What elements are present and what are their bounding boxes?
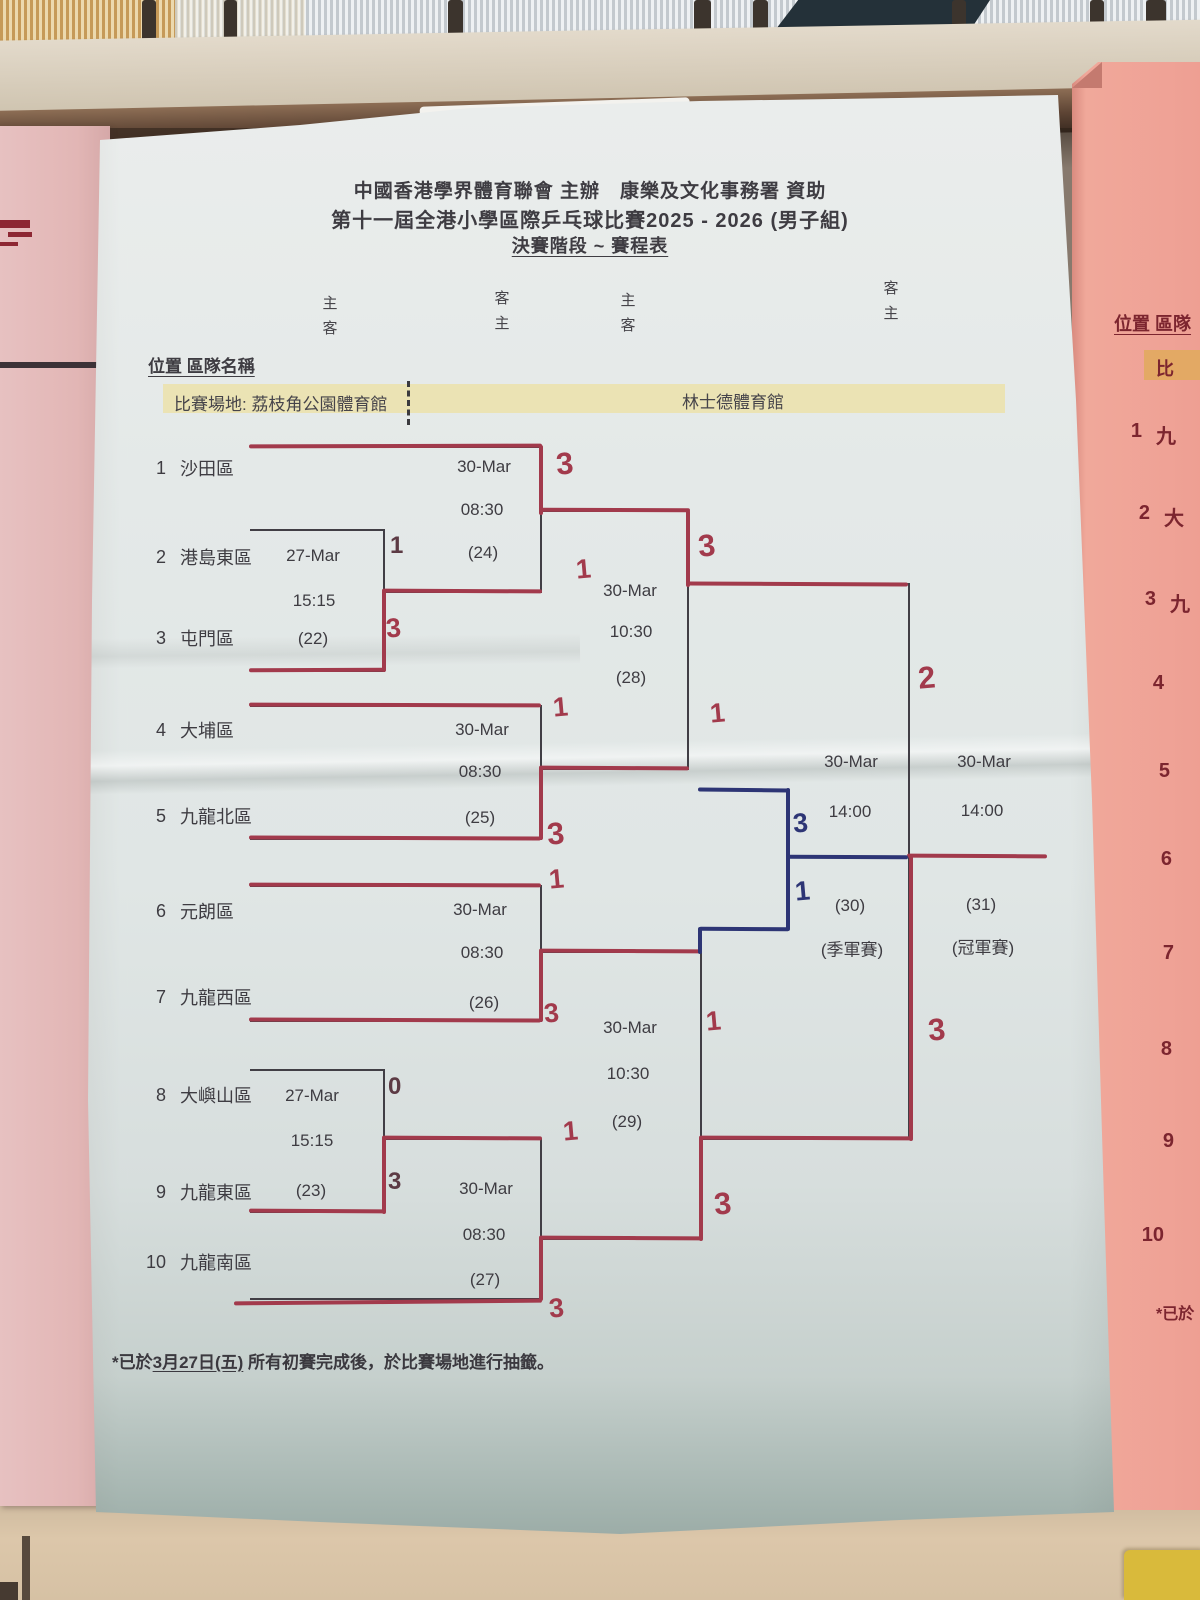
match27-score-bottom: 3 bbox=[548, 1294, 565, 1322]
match30-score-top: 3 bbox=[792, 809, 809, 837]
match30-score-bottom: 1 bbox=[794, 877, 811, 905]
pen-line-red bbox=[249, 883, 541, 888]
match23-code: (23) bbox=[296, 1181, 326, 1201]
match31-date: 30-Mar bbox=[957, 752, 1011, 772]
match26-score-top: 1 bbox=[548, 865, 565, 893]
pen-line-red bbox=[699, 1137, 703, 1241]
side-row-no: 3 bbox=[1130, 588, 1156, 617]
match28-score-bottom: 1 bbox=[709, 699, 726, 727]
home-away-header-1: 主客 bbox=[315, 291, 345, 341]
match29-time: 10:30 bbox=[607, 1064, 650, 1084]
venue-divider-dashed bbox=[407, 381, 410, 425]
team-row: 6元朗區 bbox=[126, 898, 234, 924]
pen-line-red bbox=[539, 766, 689, 771]
match29-score-bottom: 3 bbox=[713, 1187, 733, 1219]
home-away-header-3: 主客 bbox=[613, 288, 643, 338]
side-row-no: 4 bbox=[1138, 672, 1164, 695]
team-row: 5九龍北區 bbox=[126, 803, 252, 829]
pen-line-red bbox=[539, 1237, 543, 1301]
team-row: 8大嶼山區 bbox=[126, 1082, 252, 1108]
team-row: 4大埔區 bbox=[126, 717, 234, 743]
left-sheet-rule bbox=[0, 362, 104, 368]
match31-score-bottom: 3 bbox=[927, 1013, 947, 1045]
match31-label: (冠軍賽) bbox=[952, 934, 1014, 959]
bulletin-board-photo: 位置 區隊 比 1九 2大 3九 4 5 6 7 8 9 10 *已於 中國香港… bbox=[0, 0, 1200, 1600]
pen-line-red bbox=[699, 1136, 912, 1141]
team-row: 10九龍南區 bbox=[126, 1249, 252, 1275]
match28-code: (28) bbox=[616, 668, 646, 688]
match22-time: 15:15 bbox=[293, 591, 336, 611]
match22-score-bottom: 3 bbox=[385, 614, 402, 642]
match23-date: 27-Mar bbox=[285, 1086, 339, 1106]
pen-line-red bbox=[539, 1236, 702, 1241]
match25-time: 08:30 bbox=[459, 762, 502, 782]
pen-line-red bbox=[249, 444, 542, 449]
position-team-header: 位置 區隊名稱 bbox=[148, 352, 255, 377]
pen-line-blue bbox=[698, 788, 790, 793]
pen-line-red bbox=[249, 1209, 385, 1214]
pen-line-red bbox=[909, 855, 913, 1141]
pen-line-red bbox=[382, 1136, 542, 1141]
pen-line-red bbox=[539, 508, 690, 513]
match28-date: 30-Mar bbox=[603, 581, 657, 601]
home-away-header-2: 客主 bbox=[487, 286, 517, 336]
match22-date: 27-Mar bbox=[286, 546, 340, 566]
match22-code: (22) bbox=[298, 629, 328, 649]
bracket-line bbox=[250, 529, 383, 531]
match23-time: 15:15 bbox=[291, 1131, 334, 1151]
side-row-name: 大 bbox=[1164, 502, 1184, 531]
draw-footnote: *已於3月27日(五) 所有初賽完成後，於比賽場地進行抽籤。 bbox=[112, 1348, 554, 1373]
side-row-no: 10 bbox=[1138, 1224, 1164, 1247]
match25-score-bottom: 3 bbox=[546, 817, 566, 849]
match22-score-top: 1 bbox=[390, 534, 403, 558]
side-venue-partial: 比 bbox=[1156, 355, 1174, 381]
match27-time: 08:30 bbox=[463, 1225, 506, 1245]
match29-score-top: 1 bbox=[705, 1007, 722, 1035]
side-row-name: 九 bbox=[1170, 588, 1190, 617]
team-row: 1沙田區 bbox=[126, 455, 234, 481]
match24-score-bottom: 1 bbox=[575, 555, 592, 583]
match27-date: 30-Mar bbox=[459, 1179, 513, 1199]
match30-label: (季軍賽) bbox=[821, 936, 883, 961]
pen-line-red bbox=[686, 582, 908, 587]
match25-score-top: 1 bbox=[552, 693, 569, 721]
pen-line-red bbox=[249, 668, 385, 672]
match30-code: (30) bbox=[835, 896, 865, 916]
team-row: 9九龍東區 bbox=[126, 1179, 252, 1205]
side-footnote-partial: *已於 bbox=[1156, 1300, 1194, 1324]
pen-line-red bbox=[539, 445, 543, 515]
event-title: 第十一屆全港小學區際乒乓球比賽2025 - 2026 (男子組) bbox=[90, 204, 1090, 233]
pen-line-red bbox=[382, 1137, 386, 1214]
team-row: 3屯門區 bbox=[126, 625, 234, 651]
venue-first: 比賽場地: 荔枝角公園體育館 bbox=[174, 390, 387, 415]
match31-time: 14:00 bbox=[961, 801, 1004, 821]
match25-date: 30-Mar bbox=[455, 720, 509, 740]
match23-score-top: 0 bbox=[388, 1075, 401, 1099]
side-position-header: 位置 區隊 bbox=[1114, 310, 1191, 336]
pen-line-red bbox=[686, 510, 690, 587]
team-row: 2港島東區 bbox=[126, 544, 252, 570]
match26-code: (26) bbox=[469, 993, 499, 1013]
match27-score-top: 1 bbox=[562, 1117, 579, 1145]
side-row-name: 九 bbox=[1156, 420, 1176, 449]
pen-line-blue bbox=[698, 927, 702, 954]
organizer-title: 中國香港學界體育聯會 主辦 康樂及文化事務署 資助 bbox=[90, 176, 1090, 203]
match24-code: (24) bbox=[468, 543, 498, 563]
match25-code: (25) bbox=[465, 808, 495, 828]
match27-code: (27) bbox=[470, 1270, 500, 1290]
venue-second: 林士德體育館 bbox=[682, 388, 784, 413]
pen-line-red bbox=[907, 854, 1047, 859]
match24-date: 30-Mar bbox=[457, 457, 511, 477]
bottom-left-shadow bbox=[0, 1582, 18, 1600]
match30-date: 30-Mar bbox=[824, 752, 878, 772]
match28-time: 10:30 bbox=[610, 622, 653, 642]
side-row-no: 9 bbox=[1148, 1130, 1174, 1153]
match26-time: 08:30 bbox=[461, 943, 504, 963]
pen-line-red bbox=[382, 589, 542, 594]
match26-date: 30-Mar bbox=[453, 900, 507, 920]
match31-score-top: 2 bbox=[917, 661, 937, 693]
pen-line-red bbox=[249, 703, 541, 708]
team-row: 7九龍西區 bbox=[126, 984, 252, 1010]
match30-time: 14:00 bbox=[829, 802, 872, 822]
bottom-left-frame-line bbox=[22, 1536, 30, 1600]
side-row-no: 6 bbox=[1146, 848, 1172, 871]
match24-score-top: 3 bbox=[555, 447, 575, 479]
partial-logo-mark bbox=[0, 218, 38, 252]
pen-line-red bbox=[539, 950, 543, 1022]
pen-line-blue bbox=[699, 927, 789, 932]
pen-line-red bbox=[539, 949, 702, 954]
match31-code: (31) bbox=[966, 895, 996, 915]
stage-title: 決賽階段 ~ 賽程表 bbox=[90, 232, 1090, 258]
pen-line-red bbox=[539, 767, 543, 840]
match26-score-bottom: 3 bbox=[543, 999, 560, 1027]
match28-score-top: 3 bbox=[697, 529, 717, 561]
match24-time: 08:30 bbox=[461, 500, 504, 520]
side-row-no: 7 bbox=[1148, 942, 1174, 965]
bracket-line bbox=[250, 1069, 383, 1071]
side-row-no: 5 bbox=[1144, 760, 1170, 783]
match29-code: (29) bbox=[612, 1112, 642, 1132]
tournament-schedule-sheet: 中國香港學界體育聯會 主辦 康樂及文化事務署 資助 第十一屆全港小學區際乒乓球比… bbox=[0, 0, 1200, 1600]
side-row-no: 2 bbox=[1124, 502, 1150, 531]
yellow-paper-corner bbox=[1124, 1550, 1200, 1600]
pen-line-blue bbox=[786, 855, 908, 860]
match23-score-bottom: 3 bbox=[388, 1170, 401, 1194]
side-row-no: 1 bbox=[1116, 420, 1142, 449]
side-row-no: 8 bbox=[1146, 1038, 1172, 1061]
home-away-header-4: 客主 bbox=[876, 276, 906, 326]
match29-date: 30-Mar bbox=[603, 1018, 657, 1038]
pen-line-blue bbox=[786, 788, 790, 931]
